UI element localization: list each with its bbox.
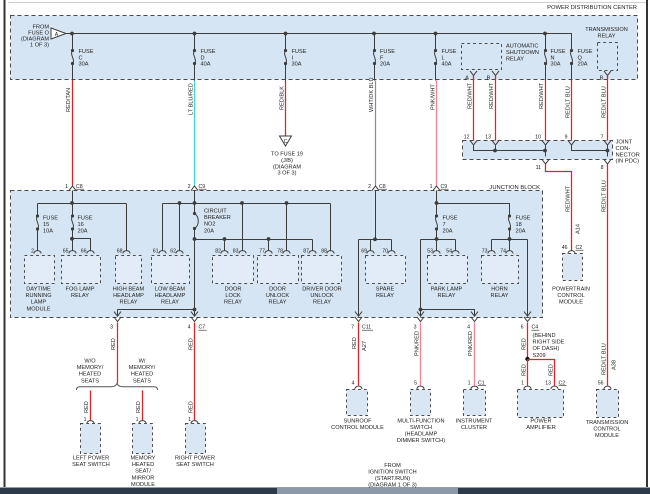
svg-text:30A: 30A: [551, 62, 561, 68]
svg-text:3: 3: [414, 325, 417, 331]
svg-text:78: 78: [277, 249, 283, 255]
svg-text:RELAY: RELAY: [269, 300, 287, 306]
svg-text:FUSE: FUSE: [201, 49, 216, 55]
svg-text:POWERTRAIN: POWERTRAIN: [552, 287, 590, 293]
svg-text:(IN PDC): (IN PDC): [616, 159, 640, 165]
svg-text:HEADLAMP: HEADLAMP: [155, 293, 186, 299]
svg-text:2: 2: [31, 249, 34, 255]
svg-text:HEADLAMP: HEADLAMP: [113, 293, 144, 299]
svg-text:UNLOCK: UNLOCK: [266, 293, 290, 299]
svg-text:10: 10: [535, 135, 541, 141]
svg-text:SEATS: SEATS: [81, 378, 99, 384]
svg-text:13: 13: [485, 135, 491, 141]
svg-text:C: C: [284, 139, 288, 145]
svg-text:12: 12: [464, 135, 470, 141]
svg-text:(DIAGRAM 1 OF 3): (DIAGRAM 1 OF 3): [368, 483, 417, 489]
svg-text:20A: 20A: [78, 228, 88, 234]
svg-text:16: 16: [78, 222, 84, 228]
svg-text:RED/WHT: RED/WHT: [539, 82, 545, 109]
svg-text:C: C: [79, 55, 83, 61]
svg-text:W/O: W/O: [84, 359, 96, 365]
svg-text:RELAY: RELAY: [161, 300, 179, 306]
svg-text:C11: C11: [362, 325, 371, 331]
svg-text:61: 61: [153, 249, 159, 255]
svg-text:N: N: [551, 55, 555, 61]
svg-text:BREAKER: BREAKER: [204, 215, 231, 221]
svg-text:TO FUSE 19: TO FUSE 19: [271, 152, 303, 158]
svg-text:88: 88: [321, 249, 327, 255]
svg-text:NECTOR: NECTOR: [616, 152, 640, 158]
svg-text:FOG LAMP: FOG LAMP: [66, 287, 95, 293]
svg-text:SUNROOF: SUNROOF: [344, 418, 373, 424]
svg-text:DIMMER SWITCH): DIMMER SWITCH): [397, 438, 445, 444]
svg-text:4: 4: [352, 381, 355, 387]
svg-text:RELAY: RELAY: [224, 300, 242, 306]
svg-text:A: A: [465, 76, 469, 82]
svg-text:CONTROL: CONTROL: [557, 293, 584, 299]
svg-text:68: 68: [117, 249, 123, 255]
svg-text:CLUSTER: CLUSTER: [461, 425, 487, 431]
svg-text:RED/BLK: RED/BLK: [280, 86, 286, 110]
svg-text:4: 4: [467, 325, 470, 331]
svg-text:74: 74: [500, 249, 506, 255]
svg-text:HIGH BEAM: HIGH BEAM: [113, 287, 145, 293]
svg-text:RED/LT BLU: RED/LT BLU: [602, 86, 608, 118]
svg-text:(DIAGRAM: (DIAGRAM: [273, 164, 301, 170]
svg-text:F: F: [380, 55, 384, 61]
svg-text:RELAY: RELAY: [438, 293, 456, 299]
svg-text:15: 15: [43, 222, 49, 228]
svg-text:1: 1: [84, 417, 87, 423]
svg-text:1: 1: [430, 184, 433, 190]
svg-text:LOW BEAM: LOW BEAM: [155, 287, 185, 293]
svg-text:FUSE: FUSE: [380, 49, 395, 55]
svg-text:4: 4: [188, 325, 191, 331]
svg-text:FUSE: FUSE: [43, 216, 58, 222]
svg-text:9: 9: [565, 135, 568, 141]
svg-text:RELAY: RELAY: [598, 34, 616, 40]
svg-text:18: 18: [516, 222, 522, 228]
svg-text:UNLOCK: UNLOCK: [310, 293, 334, 299]
svg-text:FUSE: FUSE: [551, 49, 566, 55]
svg-text:20A: 20A: [516, 228, 526, 234]
svg-text:PNK/RED: PNK/RED: [415, 331, 421, 356]
svg-text:FROM: FROM: [384, 463, 401, 469]
svg-text:C7: C7: [199, 325, 206, 331]
svg-text:62: 62: [170, 249, 176, 255]
svg-text:RED: RED: [352, 337, 358, 349]
svg-text:RED: RED: [189, 401, 195, 413]
svg-text:20A: 20A: [204, 228, 214, 234]
svg-text:(HEADLAMP: (HEADLAMP: [405, 432, 438, 438]
svg-text:INSTRUMENT: INSTRUMENT: [456, 418, 493, 424]
svg-text:CONTROL: CONTROL: [593, 427, 620, 433]
svg-text:20A: 20A: [578, 62, 588, 68]
svg-text:PNK/WHT: PNK/WHT: [431, 84, 437, 110]
svg-text:1: 1: [65, 184, 68, 190]
svg-text:AUTOMATIC: AUTOMATIC: [506, 44, 538, 50]
svg-text:RELAY: RELAY: [120, 300, 138, 306]
svg-text:RED/TAN: RED/TAN: [66, 88, 72, 112]
svg-text:Q: Q: [578, 55, 583, 61]
svg-text:LAMP: LAMP: [31, 300, 47, 306]
svg-text:3: 3: [110, 325, 113, 331]
svg-text:7: 7: [443, 222, 446, 228]
svg-text:A27: A27: [362, 341, 368, 351]
svg-text:RIGHT POWER: RIGHT POWER: [175, 456, 215, 462]
svg-text:DAYTIME: DAYTIME: [26, 287, 51, 293]
svg-text:CON-: CON-: [616, 146, 631, 152]
svg-text:OF DASH): OF DASH): [533, 346, 560, 352]
svg-text:69: 69: [361, 249, 367, 255]
svg-text:RED/LT BLU: RED/LT BLU: [602, 343, 608, 375]
svg-text:82: 82: [215, 249, 221, 255]
svg-text:SEATS: SEATS: [133, 378, 151, 384]
svg-text:MULTI-FUNCTION: MULTI-FUNCTION: [397, 418, 444, 424]
svg-text:RELAY: RELAY: [376, 293, 394, 299]
svg-text:HEATED: HEATED: [131, 372, 153, 378]
svg-text:1: 1: [136, 417, 139, 423]
svg-text:RED/LT BLU: RED/LT BLU: [602, 180, 608, 212]
svg-text:RED: RED: [111, 338, 117, 350]
svg-text:(START/RUN): (START/RUN): [375, 476, 410, 482]
svg-text:83: 83: [233, 249, 239, 255]
svg-text:RED: RED: [522, 364, 528, 376]
svg-text:70: 70: [382, 249, 388, 255]
svg-text:FUSE: FUSE: [578, 49, 593, 55]
svg-text:W/: W/: [139, 359, 146, 365]
svg-text:RED: RED: [189, 338, 195, 350]
svg-text:B: B: [487, 76, 491, 82]
svg-text:WHT/DK BLU: WHT/DK BLU: [369, 78, 375, 113]
svg-text:MEMORY/: MEMORY/: [77, 365, 104, 371]
svg-text:SEAT SWITCH: SEAT SWITCH: [72, 462, 110, 468]
svg-text:1: 1: [521, 381, 524, 387]
svg-text:65: 65: [63, 249, 69, 255]
svg-text:RUNNING: RUNNING: [25, 293, 51, 299]
svg-text:6: 6: [521, 325, 524, 331]
svg-text:(J/B): (J/B): [281, 158, 293, 164]
svg-text:77: 77: [259, 249, 265, 255]
svg-text:TRANSMISSION: TRANSMISSION: [585, 27, 628, 33]
svg-text:RED: RED: [522, 338, 528, 350]
svg-text:FUSE: FUSE: [79, 49, 94, 55]
svg-text:1: 1: [188, 417, 191, 423]
svg-text:11: 11: [536, 165, 541, 171]
svg-text:SEAT SWITCH: SEAT SWITCH: [176, 462, 214, 468]
svg-text:POWER: POWER: [530, 418, 551, 424]
svg-text:RED: RED: [136, 401, 142, 413]
svg-text:D: D: [201, 55, 205, 61]
svg-text:MODULE: MODULE: [131, 482, 155, 488]
svg-text:B: B: [600, 76, 604, 82]
svg-text:8: 8: [601, 165, 604, 171]
svg-text:SPARE: SPARE: [376, 287, 395, 293]
svg-text:SWITCH: SWITCH: [410, 425, 432, 431]
svg-text:RED/WHT: RED/WHT: [468, 82, 474, 109]
svg-text:MEMORY: MEMORY: [130, 456, 155, 462]
svg-text:PNK/RED: PNK/RED: [468, 331, 474, 356]
svg-text:MIRROR: MIRROR: [132, 475, 155, 481]
svg-text:A14: A14: [576, 224, 582, 234]
svg-text:53: 53: [427, 249, 433, 255]
svg-text:1 OF 3): 1 OF 3): [30, 43, 49, 49]
svg-text:AMPLIFIER: AMPLIFIER: [526, 425, 556, 431]
svg-text:5: 5: [414, 381, 417, 387]
svg-text:RED: RED: [84, 401, 90, 413]
svg-text:2: 2: [368, 184, 371, 190]
svg-text:1: 1: [468, 381, 471, 387]
svg-text:JOINT: JOINT: [616, 140, 633, 146]
svg-text:10A: 10A: [43, 228, 53, 234]
svg-text:DOOR: DOOR: [269, 287, 286, 293]
svg-text:RELAY: RELAY: [506, 57, 524, 63]
svg-text:RELAY: RELAY: [491, 293, 509, 299]
svg-text:(BEHIND: (BEHIND: [533, 333, 556, 339]
svg-text:HORN: HORN: [491, 287, 507, 293]
svg-text:A: A: [55, 32, 59, 38]
svg-text:FUSE: FUSE: [78, 216, 93, 222]
svg-text:POWER DISTRIBUTION CENTER: POWER DISTRIBUTION CENTER: [547, 5, 637, 11]
svg-text:TRANSMISSION: TRANSMISSION: [586, 420, 629, 426]
svg-text:MODULE: MODULE: [595, 433, 619, 439]
svg-text:C4: C4: [532, 325, 539, 331]
svg-text:40A: 40A: [201, 62, 211, 68]
svg-text:7: 7: [351, 325, 354, 331]
svg-text:46: 46: [562, 245, 568, 251]
svg-text:IGNITION SWITCH: IGNITION SWITCH: [368, 470, 416, 476]
svg-text:HEATED: HEATED: [132, 462, 154, 468]
svg-text:SEAT/: SEAT/: [135, 469, 151, 475]
svg-text:30A: 30A: [79, 62, 89, 68]
svg-text:MEMORY/: MEMORY/: [129, 365, 156, 371]
svg-text:FUSE: FUSE: [443, 216, 458, 222]
svg-text:RIGHT SIDE: RIGHT SIDE: [533, 340, 565, 346]
svg-text:LT BLU/RED: LT BLU/RED: [189, 83, 195, 115]
svg-text:MODULE: MODULE: [27, 306, 51, 312]
svg-text:FUSE: FUSE: [442, 49, 457, 55]
svg-text:PARK LAMP: PARK LAMP: [431, 287, 463, 293]
svg-text:RED/WHT: RED/WHT: [489, 82, 495, 109]
svg-text:DOOR: DOOR: [225, 287, 242, 293]
svg-text:LOCK: LOCK: [225, 293, 241, 299]
svg-text:87: 87: [303, 249, 309, 255]
svg-text:40A: 40A: [442, 62, 452, 68]
svg-text:RED: RED: [549, 364, 555, 376]
svg-text:30A: 30A: [292, 62, 302, 68]
svg-text:RED/LT BLU: RED/LT BLU: [566, 86, 572, 118]
svg-text:RELAY: RELAY: [71, 293, 89, 299]
svg-text:56: 56: [598, 381, 604, 387]
svg-text:2: 2: [188, 184, 191, 190]
svg-text:L: L: [442, 55, 445, 61]
svg-text:FUSE: FUSE: [292, 49, 307, 55]
svg-text:RED/WHT: RED/WHT: [566, 185, 572, 212]
svg-text:DRIVER DOOR: DRIVER DOOR: [302, 287, 341, 293]
svg-text:MODULE: MODULE: [559, 300, 583, 306]
svg-text:CIRCUIT: CIRCUIT: [204, 209, 227, 215]
svg-text:3 OF 3): 3 OF 3): [278, 171, 297, 177]
svg-text:CONTROL MODULE: CONTROL MODULE: [331, 425, 384, 431]
svg-text:LEFT POWER: LEFT POWER: [73, 456, 109, 462]
svg-text:RELAY: RELAY: [313, 300, 331, 306]
svg-text:NO2: NO2: [204, 222, 216, 228]
svg-text:20A: 20A: [380, 62, 390, 68]
svg-text:SHUTDOWN: SHUTDOWN: [506, 50, 539, 56]
svg-text:20A: 20A: [443, 228, 453, 234]
svg-text:HEATED: HEATED: [79, 372, 101, 378]
svg-text:54: 54: [446, 249, 452, 255]
svg-text:A38: A38: [612, 360, 618, 370]
svg-text:73: 73: [482, 249, 488, 255]
svg-text:S209: S209: [533, 353, 546, 359]
svg-text:66: 66: [81, 249, 87, 255]
svg-text:13: 13: [545, 381, 551, 387]
svg-text:FUSE: FUSE: [516, 216, 531, 222]
svg-text:7: 7: [601, 135, 604, 141]
